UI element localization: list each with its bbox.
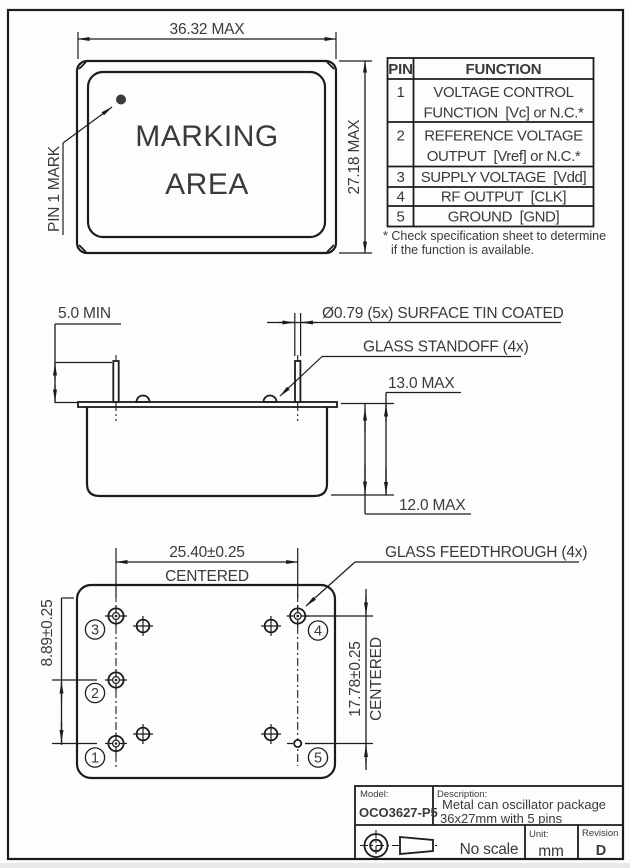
glass-feedthrough-label: GLASS FEEDTHROUGH (4x) (385, 544, 587, 561)
pin-diameter-note-text: Ø0.79 (5x) SURFACE TIN COATED (322, 305, 564, 322)
dim-total-height-13-0: 13.0 MAX (331, 375, 461, 495)
row3-function: SUPPLY VOLTAGE [Vdd] (421, 169, 587, 186)
table-footnote-line1: * Check specification sheet to determine (383, 229, 606, 243)
pin1-mark-label: PIN 1 MARK (46, 145, 63, 232)
dim-pin-pitch-text: 8.89±0.25 (39, 599, 56, 666)
table-row-4: 4 RF OUTPUT [CLK] (397, 189, 567, 206)
glass-feedthrough-callout: GLASS FEEDTHROUGH (4x) (306, 544, 587, 606)
bottom-view: 3 2 1 4 5 25.40±0.25 CENTERED 8.8 (39, 544, 587, 778)
row5-pin: 5 (397, 209, 405, 226)
row1-function-line2: FUNCTION [Vc] or N.C.* (424, 105, 585, 122)
pin-number-3: 3 (85, 620, 104, 639)
row1-pin: 1 (397, 84, 405, 101)
dim-can-height-12-0: 12.0 MAX (365, 404, 471, 514)
table-header-function: FUNCTION (466, 61, 542, 78)
model-value: OCO3627-P5 (359, 805, 438, 820)
revision-label: Revision (582, 828, 618, 839)
cone-symbol (400, 837, 433, 854)
description-line1: Metal can oscillator package (442, 797, 606, 812)
row2-function-line2: OUTPUT [Vref] or N.C.* (427, 148, 581, 165)
front-view: MARKING AREA PIN 1 MARK 36.32 MAX 27.18 … (46, 21, 372, 253)
svg-text:3: 3 (91, 623, 99, 639)
left-pin (113, 361, 118, 402)
row3-pin: 3 (397, 169, 405, 186)
svg-text:4: 4 (314, 624, 322, 640)
package-outer-outline (77, 61, 336, 253)
revision-value: D (596, 843, 606, 859)
pin-function-table: PIN FUNCTION 1 VOLTAGE CONTROL FUNCTION … (383, 58, 606, 257)
glass-standoff-label: GLASS STANDOFF (4x) (363, 339, 529, 356)
dim-pin-span-h-note: CENTERED (165, 568, 249, 585)
unit-label: Unit: (529, 829, 549, 840)
description-line2: 36x27mm with 5 pins (440, 811, 563, 826)
table-footnote-line2: if the function is available. (391, 243, 534, 257)
dim-width-36-32: 36.32 MAX (78, 21, 336, 59)
pin-number-2: 2 (85, 683, 104, 702)
drawing-sheet: MARKING AREA PIN 1 MARK 36.32 MAX 27.18 … (0, 0, 630, 863)
projection-symbol-icon (360, 830, 440, 861)
technical-drawing: MARKING AREA PIN 1 MARK 36.32 MAX 27.18 … (0, 0, 630, 863)
row1-function-line1: VOLTAGE CONTROL (433, 84, 573, 101)
table-row-3: 3 SUPPLY VOLTAGE [Vdd] (397, 169, 587, 186)
table-row-1: 1 VOLTAGE CONTROL FUNCTION [Vc] or N.C.* (397, 84, 585, 122)
scale-text: No scale (460, 841, 519, 858)
marking-area-text-line1: MARKING (135, 120, 279, 153)
dim-height-27-18: 27.18 MAX (339, 61, 372, 253)
pin-number-5: 5 (308, 748, 327, 767)
row2-pin: 2 (397, 128, 405, 145)
row4-pin: 4 (397, 189, 405, 206)
dim-can-height-text: 12.0 MAX (399, 497, 466, 514)
glass-standoff-bump-left (137, 396, 150, 402)
pin1-mark-dot (116, 95, 126, 105)
table-row-2: 2 REFERENCE VOLTAGE OUTPUT [Vref] or N.C… (397, 128, 584, 166)
row2-function-line1: REFERENCE VOLTAGE (424, 128, 583, 145)
dim-pin-length-5-0: 5.0 MIN (55, 305, 121, 403)
svg-text:5: 5 (314, 751, 322, 767)
dim-pin-span-v-note: CENTERED (368, 637, 385, 721)
marking-area-text-line2: AREA (165, 168, 249, 201)
glass-standoff-bump-right (264, 396, 277, 402)
title-block: Model: OCO3627-P5 Description: Metal can… (355, 786, 623, 861)
pin-number-4: 4 (308, 621, 327, 640)
table-header-pin: PIN (388, 61, 412, 78)
dim-pin-span-v-text: 17.78±0.25 (347, 641, 364, 716)
svg-text:2: 2 (91, 686, 99, 702)
pin-number-1: 1 (85, 748, 104, 767)
dim-pin-length-text: 5.0 MIN (58, 305, 111, 322)
table-row-5: 5 GROUND [GND] (397, 209, 560, 226)
dim-height-text: 27.18 MAX (346, 119, 363, 195)
dim-width-text: 36.32 MAX (170, 21, 246, 38)
side-view: 5.0 MIN Ø0.79 (5x) SURFACE TIN COATED GL… (55, 305, 564, 514)
row4-function: RF OUTPUT [CLK] (441, 189, 567, 206)
svg-text:1: 1 (91, 751, 99, 767)
row5-function: GROUND [GND] (448, 209, 560, 226)
unit-value: mm (538, 843, 563, 860)
dim-total-height-text: 13.0 MAX (388, 375, 455, 392)
dim-pin-span-h-text: 25.40±0.25 (169, 544, 244, 561)
can-body (87, 407, 327, 496)
model-label: Model: (360, 789, 389, 800)
